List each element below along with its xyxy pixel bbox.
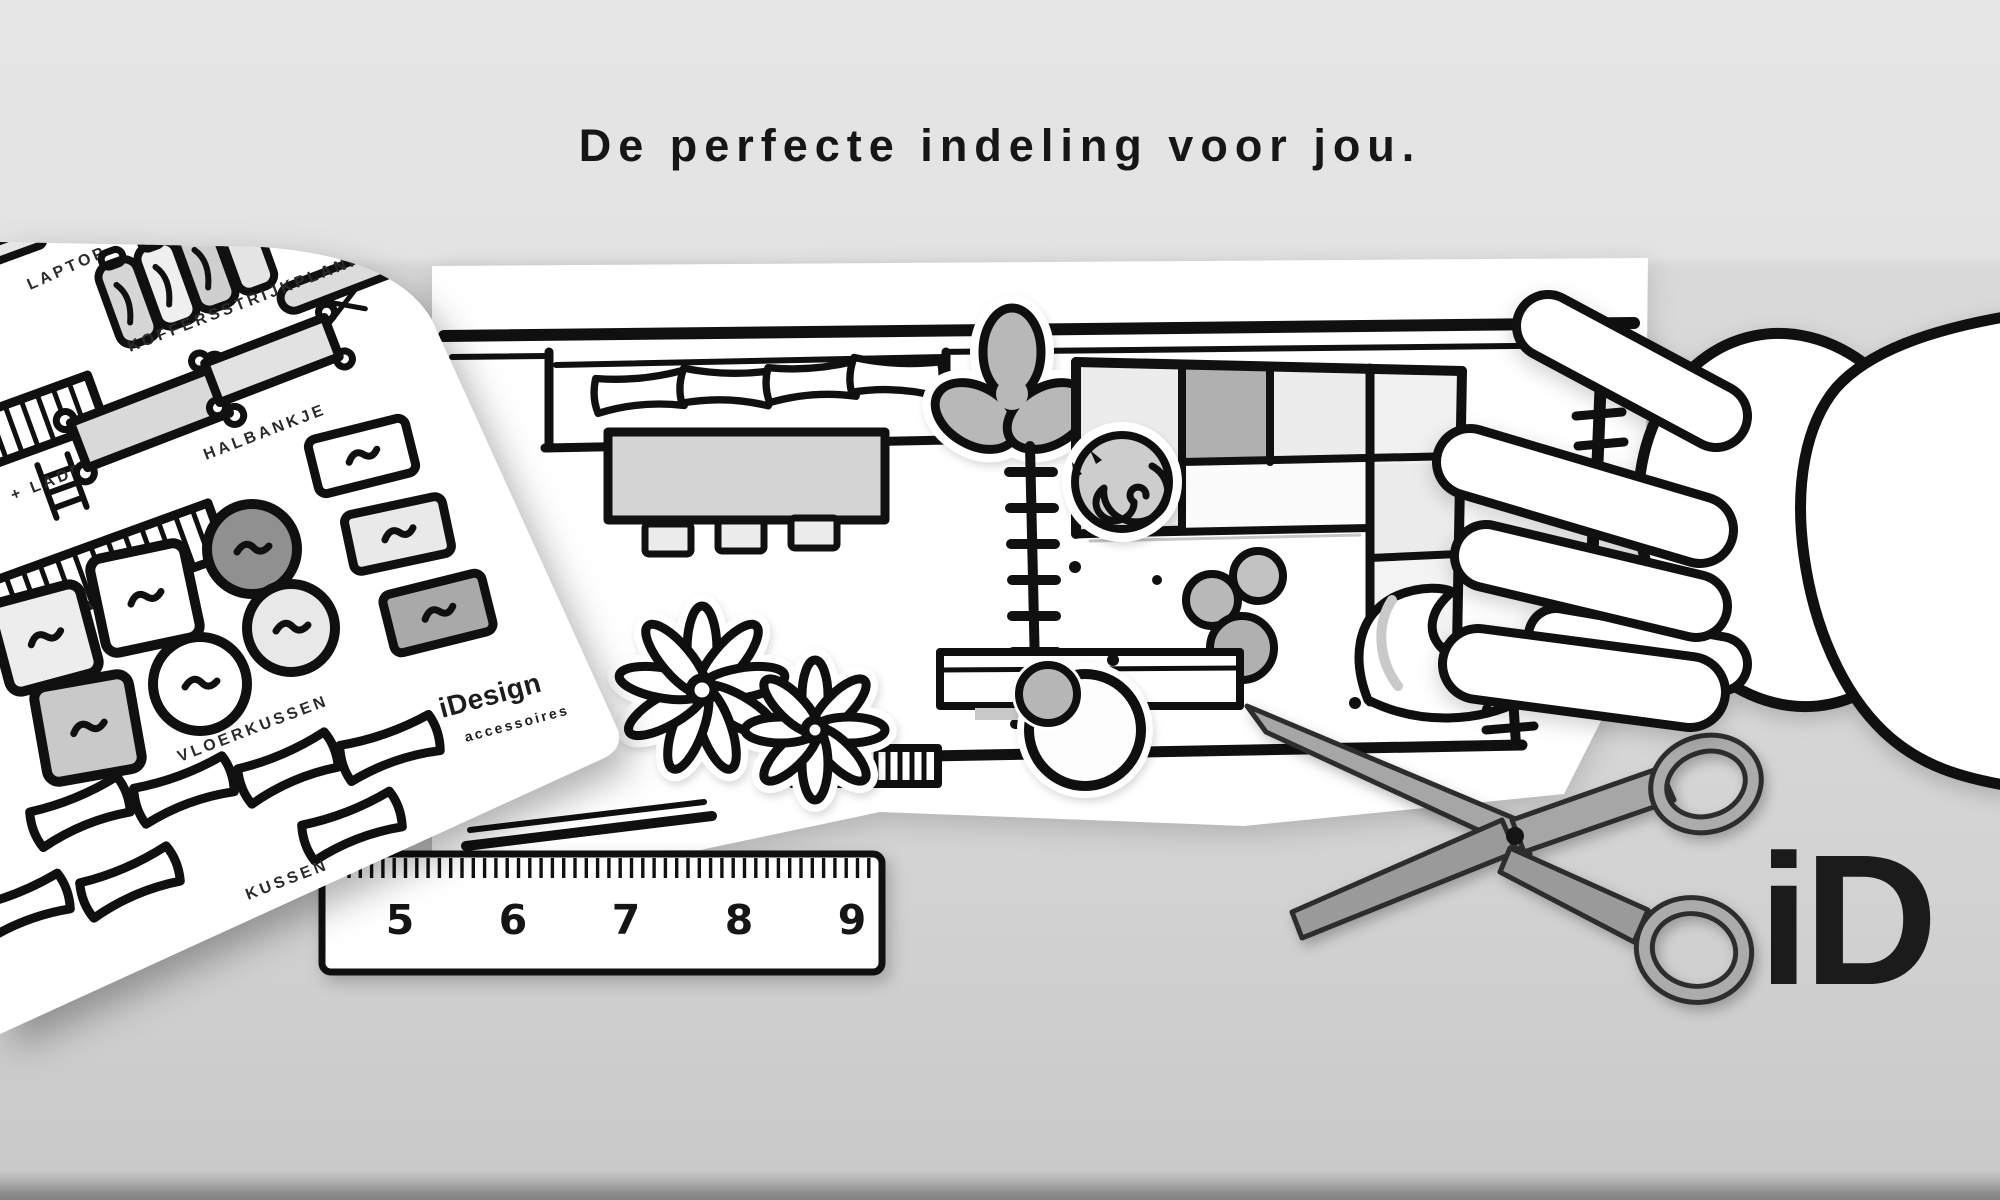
banner-title: De perfecte indeling voor jou. bbox=[0, 120, 2000, 172]
ruler-number: 6 bbox=[499, 896, 528, 944]
illustration-canvas: 5 6 7 8 9 LAPTOP bbox=[0, 0, 2000, 1200]
ruler-number: 5 bbox=[386, 896, 415, 944]
sleeping-cat bbox=[1062, 422, 1182, 542]
id-logo: iD bbox=[1758, 817, 1932, 1024]
chairs bbox=[645, 518, 837, 554]
ruler-ticks bbox=[349, 858, 869, 878]
dining-table bbox=[608, 432, 885, 520]
ruler-number: 7 bbox=[612, 896, 641, 944]
ruler: 5 6 7 8 9 bbox=[322, 854, 882, 972]
ruler-number: 8 bbox=[725, 896, 754, 944]
ruler-number: 9 bbox=[838, 896, 867, 944]
